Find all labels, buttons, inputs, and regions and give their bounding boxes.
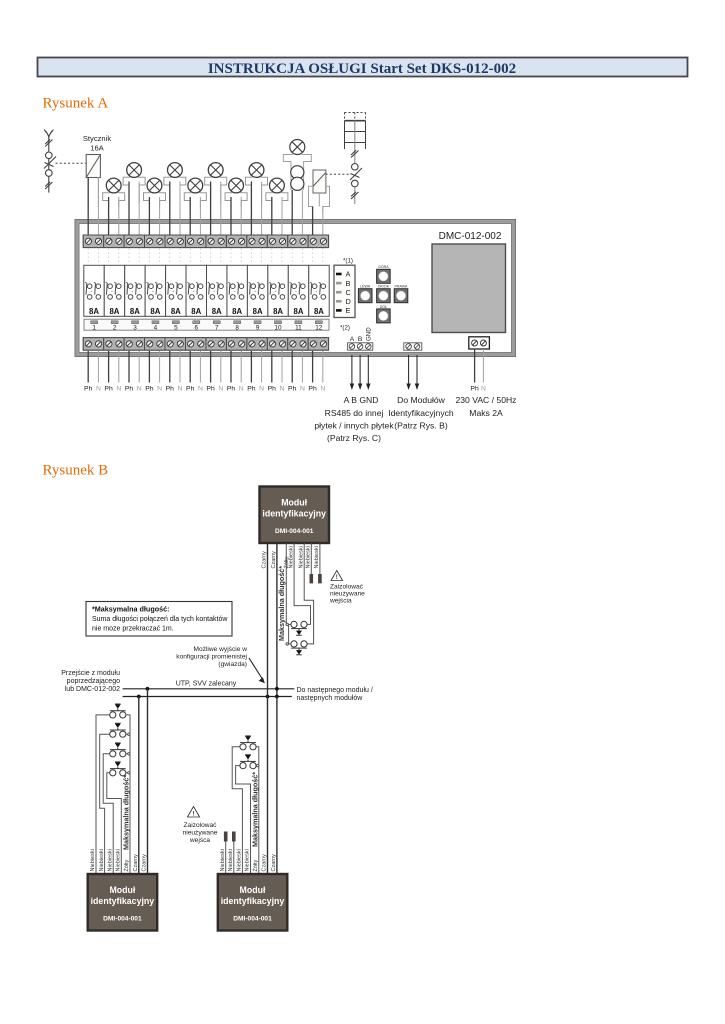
svg-text:Maksymalna długość*: Maksymalna długość* xyxy=(277,566,286,641)
svg-text:PRAWA: PRAWA xyxy=(395,285,409,289)
svg-text:9: 9 xyxy=(256,324,260,331)
svg-text:1: 1 xyxy=(92,324,96,331)
svg-text:7: 7 xyxy=(215,324,219,331)
svg-text:Czarny: Czarny xyxy=(262,854,268,872)
svg-text:*(1): *(1) xyxy=(343,258,353,265)
svg-text:N: N xyxy=(198,386,203,393)
svg-text:8A: 8A xyxy=(109,307,119,316)
svg-text:N: N xyxy=(280,386,285,393)
svg-text:Ph: Ph xyxy=(206,386,215,393)
svg-text:Ph: Ph xyxy=(166,386,175,393)
svg-text:Czarny: Czarny xyxy=(133,854,139,872)
svg-text:Ph: Ph xyxy=(470,386,479,393)
svg-text:Rysunek A: Rysunek A xyxy=(43,95,109,111)
svg-text:Rysunek B: Rysunek B xyxy=(43,462,109,478)
svg-text:Zaizolować: Zaizolować xyxy=(184,822,218,829)
svg-text:Maksymalna długość*: Maksymalna długość* xyxy=(122,775,131,850)
svg-text:B: B xyxy=(358,336,363,343)
svg-text:D: D xyxy=(346,297,351,306)
svg-text:Niebieski: Niebieski xyxy=(298,546,304,568)
svg-text:N: N xyxy=(300,386,305,393)
svg-text:GND: GND xyxy=(366,327,373,341)
svg-text:10: 10 xyxy=(274,324,282,331)
svg-text:identyfikacyjny: identyfikacyjny xyxy=(91,896,155,906)
svg-text:Ph: Ph xyxy=(268,386,277,393)
svg-text:Niebieski: Niebieski xyxy=(306,546,312,568)
svg-text:N: N xyxy=(116,386,121,393)
svg-text:Ph: Ph xyxy=(104,386,113,393)
svg-text:2: 2 xyxy=(113,324,117,331)
svg-text:Czarny: Czarny xyxy=(142,854,148,872)
svg-text:Niebieski: Niebieski xyxy=(99,849,105,871)
svg-text:Niebieski: Niebieski xyxy=(228,849,234,871)
svg-text:N: N xyxy=(320,386,325,393)
svg-text:Zaizolować: Zaizolować xyxy=(330,584,364,591)
svg-text:8A: 8A xyxy=(89,307,99,316)
svg-text:230 VAC / 50Hz: 230 VAC / 50Hz xyxy=(456,395,517,405)
svg-text:nieużywane: nieużywane xyxy=(330,591,365,598)
svg-text:następnych modułów: następnych modułów xyxy=(297,695,364,702)
svg-text:Ph: Ph xyxy=(308,386,317,393)
svg-text:Identyfikacyjnych: Identyfikacyjnych xyxy=(388,408,454,418)
svg-text:Ph: Ph xyxy=(186,386,195,393)
svg-text:11: 11 xyxy=(295,324,302,331)
svg-text:Czarny: Czarny xyxy=(271,551,277,569)
svg-text:lub DMC-012-002: lub DMC-012-002 xyxy=(65,686,120,693)
svg-text:DMI-004-001: DMI-004-001 xyxy=(103,916,142,923)
svg-text:INSTRUKCJA OSŁUGI Start Set DK: INSTRUKCJA OSŁUGI Start Set DKS-012-002 xyxy=(208,61,516,77)
svg-text:N: N xyxy=(218,386,223,393)
svg-text:N: N xyxy=(96,386,101,393)
svg-text:Możliwe wyjście w: Możliwe wyjście w xyxy=(194,646,248,653)
svg-text:5: 5 xyxy=(174,324,178,331)
svg-text:LEWA: LEWA xyxy=(360,285,371,289)
svg-text:GÓRA: GÓRA xyxy=(378,264,389,269)
svg-text:A: A xyxy=(346,270,351,279)
svg-text:8A: 8A xyxy=(130,307,140,316)
svg-text:A: A xyxy=(350,336,355,343)
svg-text:6: 6 xyxy=(195,324,199,331)
svg-text:DÓŁ: DÓŁ xyxy=(380,304,387,309)
svg-text:poprzedzającego: poprzedzającego xyxy=(67,678,120,685)
svg-text:Żółty: Żółty xyxy=(252,859,259,871)
svg-text:Niebieski: Niebieski xyxy=(220,849,226,871)
svg-text:identyfikacyjny: identyfikacyjny xyxy=(262,509,326,519)
svg-text:płytek / innych płytek: płytek / innych płytek xyxy=(314,421,394,431)
svg-text:12: 12 xyxy=(315,324,323,331)
svg-text:Ph: Ph xyxy=(247,386,256,393)
svg-text:wejśca: wejśca xyxy=(189,837,210,844)
svg-text:Ph: Ph xyxy=(125,386,134,393)
svg-text:N: N xyxy=(481,386,486,393)
svg-text:OK/OK: OK/OK xyxy=(378,285,390,289)
svg-text:C: C xyxy=(346,288,352,297)
svg-text:8A: 8A xyxy=(314,307,324,316)
svg-text:Do następnego modułu /: Do następnego modułu / xyxy=(297,687,373,694)
svg-text:*(2): *(2) xyxy=(340,325,350,332)
svg-text:Ph: Ph xyxy=(145,386,154,393)
svg-text:DMI-004-001: DMI-004-001 xyxy=(275,528,314,535)
svg-text:N: N xyxy=(137,386,142,393)
svg-text:Niebieski: Niebieski xyxy=(314,546,320,568)
svg-text:Czarny: Czarny xyxy=(262,551,268,569)
svg-text:Niebieski: Niebieski xyxy=(90,849,96,871)
svg-text:B: B xyxy=(346,279,351,288)
svg-text:wejścia: wejścia xyxy=(329,598,352,605)
svg-text:8A: 8A xyxy=(253,307,263,316)
svg-text:8A: 8A xyxy=(232,307,242,316)
svg-text:identyfikacyjny: identyfikacyjny xyxy=(221,896,285,906)
svg-text:Ph: Ph xyxy=(84,386,93,393)
svg-text:Moduł: Moduł xyxy=(109,885,135,895)
svg-text:8A: 8A xyxy=(294,307,304,316)
svg-text:DMI-004-001: DMI-004-001 xyxy=(233,916,272,923)
svg-text:Niebieski: Niebieski xyxy=(116,849,122,871)
svg-text:Przejście z modułu: Przejście z modułu xyxy=(61,670,120,677)
svg-text:A B GND: A B GND xyxy=(344,395,379,405)
svg-text:(Patrz Rys. C): (Patrz Rys. C) xyxy=(327,433,381,443)
svg-text:Żółty: Żółty xyxy=(123,859,130,871)
svg-text:8A: 8A xyxy=(171,307,181,316)
svg-text:Moduł: Moduł xyxy=(281,498,307,508)
svg-text:8A: 8A xyxy=(212,307,222,316)
svg-text:4: 4 xyxy=(154,324,158,331)
svg-text:!: ! xyxy=(336,575,338,581)
svg-text:Niebieski: Niebieski xyxy=(245,849,251,871)
svg-text:N: N xyxy=(157,386,162,393)
svg-text:(Patrz Rys. B): (Patrz Rys. B) xyxy=(394,421,448,431)
svg-text:(gwiazda): (gwiazda) xyxy=(218,661,247,668)
svg-text:8A: 8A xyxy=(191,307,201,316)
svg-text:RS485 do innej: RS485 do innej xyxy=(325,408,384,418)
svg-text:Stycznik: Stycznik xyxy=(83,134,111,143)
svg-text:Maksymalna długość*: Maksymalna długość* xyxy=(250,772,259,847)
svg-text:Ph: Ph xyxy=(288,386,297,393)
svg-text:Ph: Ph xyxy=(227,386,236,393)
svg-text:Suma długości połączeń dla tyc: Suma długości połączeń dla tych kontaktó… xyxy=(92,616,228,623)
svg-text:konfiguracji promienistej: konfiguracji promienistej xyxy=(176,654,247,661)
svg-text:DMC-012-002: DMC-012-002 xyxy=(439,231,502,242)
svg-text:Niebieski: Niebieski xyxy=(107,849,113,871)
svg-text:E: E xyxy=(346,306,351,315)
svg-text:Moduł: Moduł xyxy=(240,885,266,895)
svg-text:8A: 8A xyxy=(150,307,160,316)
svg-text:N: N xyxy=(239,386,244,393)
svg-text:nieużywane: nieużywane xyxy=(183,830,218,837)
svg-text:Niebieski: Niebieski xyxy=(237,849,243,871)
svg-text:*Maksymalna długość:: *Maksymalna długość: xyxy=(92,605,170,614)
svg-text:!: ! xyxy=(193,812,195,818)
svg-text:N: N xyxy=(178,386,183,393)
svg-text:8A: 8A xyxy=(273,307,283,316)
svg-text:Do Modułów: Do Modułów xyxy=(397,395,446,405)
svg-text:nie moze przekraczać 1m.: nie moze przekraczać 1m. xyxy=(92,626,174,633)
svg-text:8: 8 xyxy=(235,324,239,331)
svg-text:UTP, SVV zalecany: UTP, SVV zalecany xyxy=(176,681,237,688)
svg-text:3: 3 xyxy=(133,324,137,331)
svg-text:N: N xyxy=(259,386,264,393)
svg-text:Niebieski: Niebieski xyxy=(288,546,294,568)
svg-text:16A: 16A xyxy=(90,144,104,153)
svg-text:Czarny: Czarny xyxy=(271,854,277,872)
svg-text:Maks 2A: Maks 2A xyxy=(469,408,503,418)
